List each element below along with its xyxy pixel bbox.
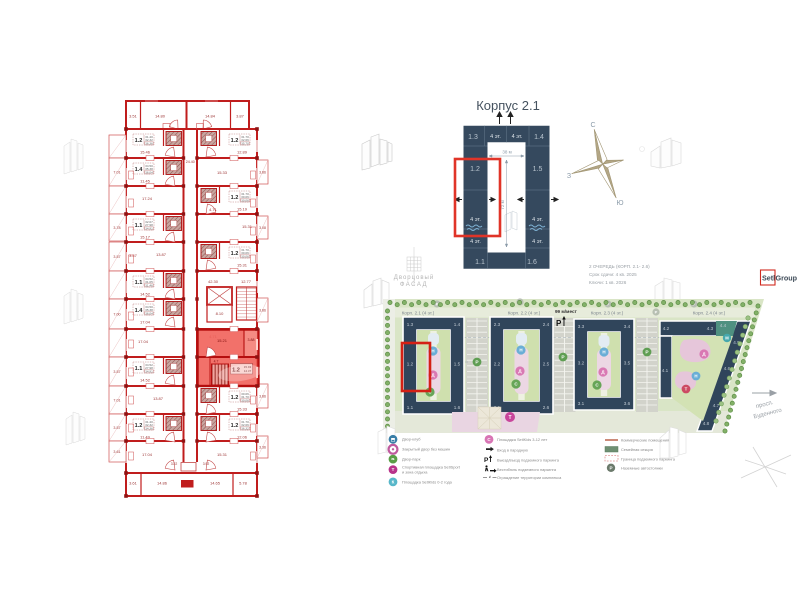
svg-text:3.78: 3.78 <box>113 226 120 230</box>
svg-text:7.00: 7.00 <box>113 313 120 317</box>
svg-text:14.65: 14.65 <box>210 481 221 486</box>
svg-text:3.51: 3.51 <box>129 114 138 119</box>
svg-text:Корп. 2.2 (4 эт.): Корп. 2.2 (4 эт.) <box>508 311 541 316</box>
svg-text:1.4: 1.4 <box>135 167 144 173</box>
svg-text:17.24: 17.24 <box>142 196 153 201</box>
svg-text:42.30: 42.30 <box>208 279 219 284</box>
svg-text:15.17: 15.17 <box>140 235 151 240</box>
svg-text:15.31: 15.31 <box>237 263 248 268</box>
svg-text:15.46: 15.46 <box>140 150 151 155</box>
svg-text:3.88: 3.88 <box>248 338 255 342</box>
svg-text:Р: Р <box>655 309 658 314</box>
svg-text:Площадка SetlKids 3-12 лет: Площадка SetlKids 3-12 лет <box>497 437 547 442</box>
svg-text:и зона отдыха: и зона отдыха <box>402 470 428 475</box>
svg-text:15.19: 15.19 <box>237 207 248 212</box>
svg-text:Корп. 2.3 (4 эт.): Корп. 2.3 (4 эт.) <box>591 311 624 316</box>
svg-text:2.6: 2.6 <box>543 405 550 410</box>
svg-text:2.2: 2.2 <box>494 362 501 367</box>
svg-text:4.1: 4.1 <box>662 368 669 373</box>
svg-text:Коммерческие помещения: Коммерческие помещения <box>621 438 669 443</box>
svg-text:3.57: 3.57 <box>113 426 120 430</box>
svg-text:36.32: 36.32 <box>241 427 249 431</box>
svg-text:3.22: 3.22 <box>171 462 178 466</box>
svg-text:3.3: 3.3 <box>578 324 585 329</box>
svg-text:Корп. 2.1 (4 эт.): Корп. 2.1 (4 эт.) <box>402 311 435 316</box>
svg-text:17.04: 17.04 <box>140 320 151 325</box>
svg-text:2.5: 2.5 <box>543 362 550 367</box>
svg-text:8.10: 8.10 <box>216 311 225 316</box>
svg-text:Н: Н <box>431 349 434 354</box>
svg-text:1.2: 1.2 <box>407 362 414 367</box>
svg-text:1.1: 1.1 <box>135 223 143 229</box>
svg-text:1.1: 1.1 <box>135 366 143 372</box>
svg-text:4.71: 4.71 <box>209 207 218 212</box>
svg-text:24.40: 24.40 <box>186 160 195 164</box>
svg-text:2 ОЧЕРЕДЬ (КОРП. 2.1- 2.6): 2 ОЧЕРЕДЬ (КОРП. 2.1- 2.6) <box>589 264 650 269</box>
svg-text:4.4: 4.4 <box>720 323 727 328</box>
svg-text:35.70: 35.70 <box>241 142 249 146</box>
svg-text:3.36: 3.36 <box>259 446 266 450</box>
svg-text:4.8: 4.8 <box>703 421 710 426</box>
svg-text:14.52: 14.52 <box>140 378 151 383</box>
svg-text:4.6: 4.6 <box>724 366 731 371</box>
svg-text:Корпус 2.1: Корпус 2.1 <box>476 98 540 113</box>
svg-text:М: М <box>725 336 729 341</box>
svg-text:З: З <box>567 173 571 180</box>
svg-text:17.04: 17.04 <box>138 339 149 344</box>
svg-text:1.2: 1.2 <box>231 195 239 201</box>
svg-text:3.92: 3.92 <box>203 462 210 466</box>
svg-text:⬒: ⬒ <box>391 437 396 442</box>
svg-text:14.86: 14.86 <box>157 481 168 486</box>
svg-text:1.2: 1.2 <box>231 138 239 144</box>
svg-text:Ключи: 1 кв. 2026: Ключи: 1 кв. 2026 <box>589 280 627 285</box>
svg-text:4.7: 4.7 <box>713 403 720 408</box>
svg-text:Корп. 2.4 (4 эт.): Корп. 2.4 (4 эт.) <box>693 311 726 316</box>
svg-text:3.86: 3.86 <box>259 171 266 175</box>
svg-text:1.3: 1.3 <box>407 322 414 327</box>
svg-text:1.1: 1.1 <box>407 405 414 410</box>
svg-text:2.3: 2.3 <box>494 322 501 327</box>
svg-text:❧: ❧ <box>391 457 395 462</box>
svg-text:Р: Р <box>484 457 489 464</box>
svg-text:Setl: Setl <box>762 274 775 283</box>
svg-text:4 эт.: 4 эт. <box>470 239 481 245</box>
svg-text:Ограждение территории комплекс: Ограждение территории комплекса <box>497 475 562 480</box>
svg-text:Н: Н <box>519 348 522 353</box>
svg-text:3.87: 3.87 <box>236 114 245 119</box>
svg-text:3.1: 3.1 <box>578 401 585 406</box>
svg-text:Двор-клуб: Двор-клуб <box>402 437 421 442</box>
svg-text:3.86: 3.86 <box>259 309 266 313</box>
svg-text:Ю: Ю <box>616 200 623 207</box>
svg-text:36.36: 36.36 <box>145 142 153 146</box>
svg-text:4 эт.: 4 эт. <box>532 239 543 245</box>
svg-text:1.2: 1.2 <box>231 251 239 257</box>
svg-text:1.5: 1.5 <box>533 166 543 173</box>
svg-text:Срок сдачи: 4 кв. 2025: Срок сдачи: 4 кв. 2025 <box>589 272 637 277</box>
svg-text:Площадка SetlKids 0-2 года: Площадка SetlKids 0-2 года <box>402 479 453 484</box>
svg-text:3.6: 3.6 <box>624 401 631 406</box>
svg-text:2.4: 2.4 <box>543 322 550 327</box>
svg-text:12.77: 12.77 <box>241 279 252 284</box>
svg-text:1.1: 1.1 <box>135 280 143 286</box>
svg-text:38 м: 38 м <box>502 150 511 155</box>
svg-text:Семейная секция: Семейная секция <box>621 447 653 452</box>
svg-text:4 эт.: 4 эт. <box>470 217 481 223</box>
svg-text:15.33: 15.33 <box>237 407 248 412</box>
svg-text:Group: Group <box>776 274 798 283</box>
svg-text:4.3: 4.3 <box>707 326 714 331</box>
svg-text:1.2: 1.2 <box>231 395 239 401</box>
svg-text:1.5: 1.5 <box>454 362 461 367</box>
svg-text:К: К <box>392 480 395 485</box>
svg-text:14.80: 14.80 <box>155 114 166 119</box>
svg-text:1.6: 1.6 <box>527 259 537 266</box>
svg-text:Т: Т <box>508 415 511 421</box>
svg-text:14.52: 14.52 <box>140 292 151 297</box>
svg-text:14.84: 14.84 <box>205 114 216 119</box>
svg-text:15.31: 15.31 <box>242 224 253 229</box>
svg-text:7.01: 7.01 <box>113 399 120 403</box>
svg-text:30.06: 30.06 <box>241 255 249 259</box>
svg-text:Р: Р <box>609 465 612 470</box>
svg-text:1.1: 1.1 <box>475 259 485 266</box>
svg-text:99 м/мест: 99 м/мест <box>555 309 578 314</box>
svg-text:34.36: 34.36 <box>145 427 153 431</box>
svg-text:7.01: 7.01 <box>113 171 120 175</box>
svg-text:5.78: 5.78 <box>239 481 248 486</box>
svg-text:3.61: 3.61 <box>129 481 138 486</box>
svg-text:3.08: 3.08 <box>259 226 266 230</box>
svg-text:15.21: 15.21 <box>217 338 228 343</box>
svg-text:1.4: 1.4 <box>534 134 544 141</box>
svg-text:Р: Р <box>556 319 562 328</box>
svg-text:Наземные автостоянки: Наземные автостоянки <box>621 465 663 470</box>
svg-text:3.57: 3.57 <box>113 370 120 374</box>
svg-text:12.89: 12.89 <box>237 150 248 155</box>
svg-text:3.86: 3.86 <box>259 395 266 399</box>
svg-text:1.4: 1.4 <box>135 308 144 314</box>
svg-text:1.2: 1.2 <box>231 423 239 429</box>
svg-text:Т: Т <box>392 467 395 472</box>
svg-text:Н: Н <box>694 374 697 379</box>
svg-text:30.06: 30.06 <box>241 199 249 203</box>
svg-text:3.61: 3.61 <box>113 450 120 454</box>
svg-text:1.6: 1.6 <box>454 405 461 410</box>
svg-text:15.31: 15.31 <box>217 452 228 457</box>
svg-text:36.04: 36.04 <box>145 171 153 175</box>
svg-text:Н: Н <box>602 350 605 355</box>
svg-text:1.2: 1.2 <box>135 423 143 429</box>
svg-text:3.57: 3.57 <box>113 255 120 259</box>
svg-text:4 эт.: 4 эт. <box>512 134 523 140</box>
svg-text:1.3: 1.3 <box>468 134 478 141</box>
svg-text:17.04: 17.04 <box>142 452 153 457</box>
svg-text:Вход в парадную: Вход в парадную <box>497 447 528 452</box>
svg-text:1.4: 1.4 <box>454 322 461 327</box>
svg-text:34.91: 34.91 <box>145 370 153 374</box>
svg-text:12.06: 12.06 <box>237 435 248 440</box>
svg-text:4.7: 4.7 <box>214 360 219 364</box>
svg-text:С: С <box>590 122 595 129</box>
svg-text:3.5: 3.5 <box>624 361 631 366</box>
svg-text:13.87: 13.87 <box>156 252 167 257</box>
svg-text:31.46: 31.46 <box>145 284 153 288</box>
svg-text:Двор-парк: Двор-парк <box>402 457 421 462</box>
svg-text:11.45: 11.45 <box>140 179 150 184</box>
svg-text:4 эт.: 4 эт. <box>532 217 543 223</box>
svg-text:4 эт.: 4 эт. <box>490 134 501 140</box>
svg-text:34.91: 34.91 <box>145 227 153 231</box>
svg-text:3.4: 3.4 <box>624 324 631 329</box>
svg-text:Вестибюль подземного паркинга: Вестибюль подземного паркинга <box>497 467 557 472</box>
svg-text:Граница подземного паркинга: Граница подземного паркинга <box>621 456 676 461</box>
svg-text:Выезд/въезд подземного паркинг: Выезд/въезд подземного паркинга <box>497 458 560 463</box>
svg-text:15.33: 15.33 <box>217 170 228 175</box>
svg-text:30.06: 30.06 <box>241 399 249 403</box>
svg-text:1.2: 1.2 <box>470 166 480 173</box>
svg-text:3.2: 3.2 <box>578 361 585 366</box>
svg-text:13.87: 13.87 <box>153 396 164 401</box>
svg-text:4.2: 4.2 <box>663 326 670 331</box>
svg-text:просп.: просп. <box>755 400 774 410</box>
svg-text:Т: Т <box>685 387 688 392</box>
svg-text:36.04: 36.04 <box>145 312 153 316</box>
svg-text:Дворцовый: Дворцовый <box>394 274 434 281</box>
svg-text:Закрытый двор без машин: Закрытый двор без машин <box>402 447 450 452</box>
svg-text:ФАСАД: ФАСАД <box>400 282 428 288</box>
svg-text:1.2: 1.2 <box>135 138 143 144</box>
